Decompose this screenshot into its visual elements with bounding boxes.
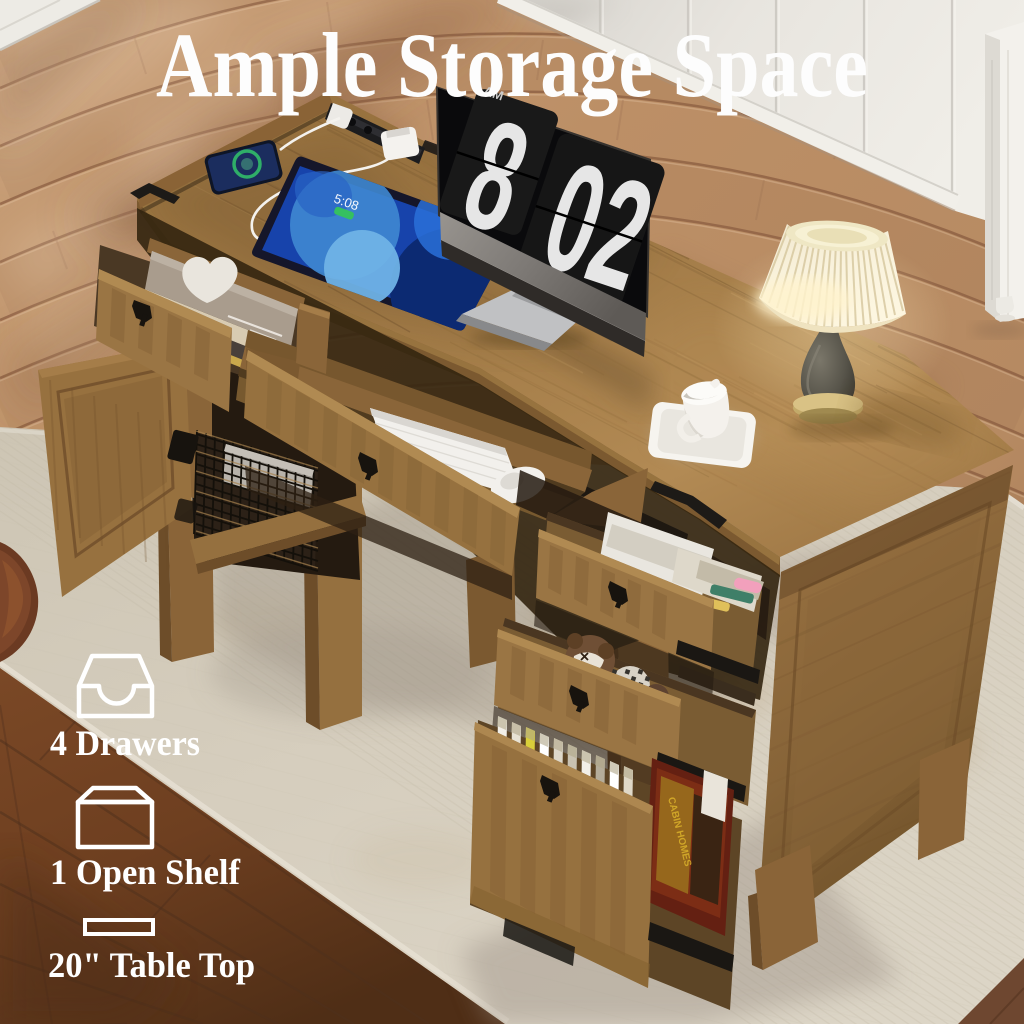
- svg-text:4 Drawers: 4 Drawers: [50, 723, 200, 763]
- svg-text:Ample Storage Space: Ample Storage Space: [156, 14, 868, 116]
- svg-text:20" Table Top: 20" Table Top: [48, 945, 255, 985]
- svg-text:1 Open Shelf: 1 Open Shelf: [50, 852, 241, 892]
